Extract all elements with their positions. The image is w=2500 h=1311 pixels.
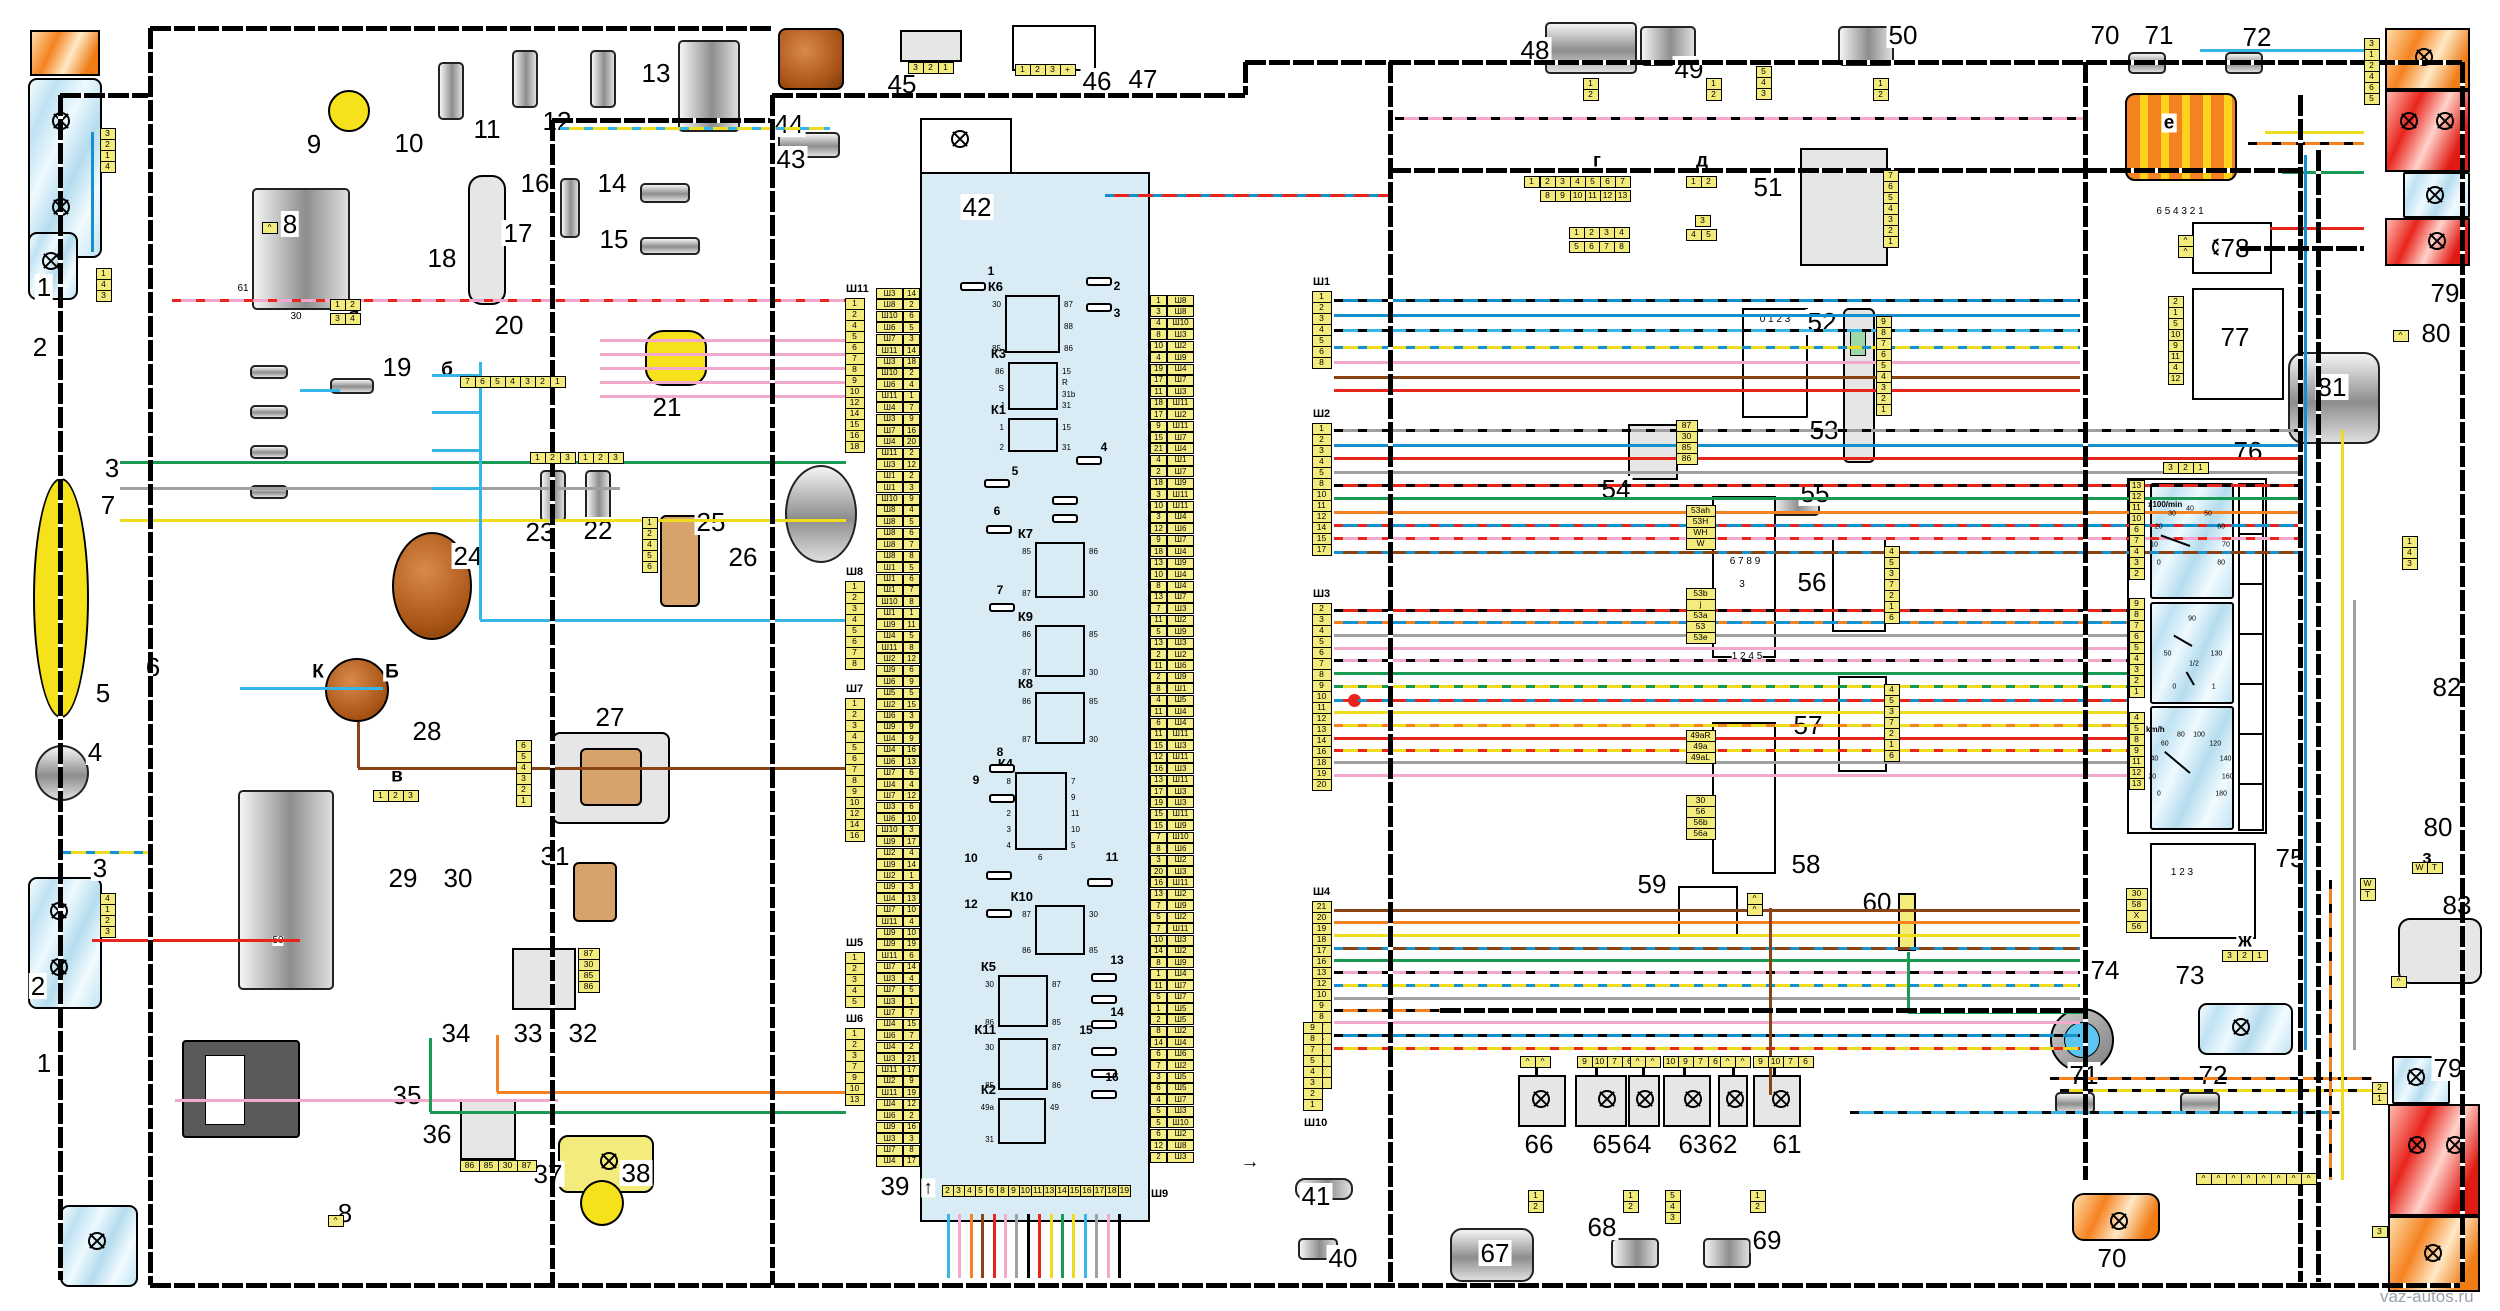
pin-9: 9 <box>903 1076 920 1087</box>
pin-14: 14 <box>1150 946 1167 957</box>
block-left-row: Ш910 <box>876 928 920 939</box>
conn-Ш4: Ш4 <box>876 1019 903 1030</box>
pin-^: ^ <box>2271 1173 2287 1185</box>
conn-Ш3: Ш3 <box>876 802 903 813</box>
gauge-tick-160: 160 <box>2222 773 2234 780</box>
fuel-sender-83 <box>2398 918 2482 984</box>
pin-16: 16 <box>1150 763 1167 774</box>
small-label: 30 <box>290 312 301 322</box>
pin-^: ^ <box>2393 330 2409 342</box>
relay-К7 <box>1035 542 1085 598</box>
column-switch-lower <box>1712 722 1776 874</box>
pin-56: 56 <box>2126 921 2148 933</box>
pin-13: 13 <box>1615 190 1631 202</box>
pin-7: 7 <box>1150 832 1167 843</box>
fuse-1 <box>960 282 986 291</box>
harness-line <box>2460 62 2465 1282</box>
block-left-row: Ш1119 <box>876 1087 920 1098</box>
pin-^: ^ <box>1520 1056 1536 1068</box>
wire-horizontal <box>300 389 340 392</box>
block-right-row: 3Ш8 <box>1150 306 1194 317</box>
conn-Ш10: Ш10 <box>876 494 903 505</box>
block-left-row: Ш11 <box>876 608 920 619</box>
pin-3: 3 <box>1150 306 1167 317</box>
component-number-41: 41 <box>1300 1183 1333 1209</box>
relay-pin-30: 30 <box>1088 911 1099 919</box>
connector-chip: 12456 <box>642 517 657 572</box>
relay-32-body <box>512 948 576 1010</box>
block-right-row: 13Ш3 <box>1150 638 1194 649</box>
generator <box>252 188 350 310</box>
wire-horizontal <box>1334 361 2080 364</box>
block-left-row: Ш67 <box>876 1030 920 1041</box>
gauge-tick-180: 180 <box>2215 790 2227 797</box>
conn-Ш4: Ш4 <box>1167 718 1194 729</box>
pin-1: 1 <box>1150 1003 1167 1014</box>
conn-Ш9: Ш9 <box>876 665 903 676</box>
connector-strip-Ш7: 12345678910121416 <box>845 698 864 841</box>
block-right-row: 6Ш2 <box>1150 1129 1194 1140</box>
wire-vertical <box>1050 1214 1053 1278</box>
pin-56a: 56a <box>1686 828 1716 840</box>
wiring-diagram: vaz-autos.ru 123756432189101112131614151… <box>0 0 2500 1311</box>
wire-horizontal <box>120 461 846 464</box>
pin-2: 2 <box>1584 227 1600 239</box>
relay-К4 <box>1015 772 1067 850</box>
conn-Ш11: Ш11 <box>1167 923 1194 934</box>
connector-chip: 123 <box>578 452 623 463</box>
conn-Ш10: Ш10 <box>1167 1117 1194 1128</box>
conn-Ш11: Ш11 <box>1167 877 1194 888</box>
wire-horizontal <box>1334 711 2127 714</box>
connector-chip: 87308586 <box>1676 420 1697 464</box>
block-right-row: 8Ш9 <box>1150 957 1194 968</box>
conn-Ш9: Ш9 <box>876 859 903 870</box>
fuse-14 <box>1091 1020 1117 1029</box>
wire-horizontal <box>62 851 152 854</box>
relay-pin-9: 9 <box>1070 794 1076 802</box>
conn-Ш11: Ш11 <box>1167 729 1194 740</box>
block-right-row: 11Ш4 <box>1150 706 1194 717</box>
wire-horizontal <box>1334 909 2080 912</box>
conn-Ш4: Ш4 <box>1167 364 1194 375</box>
pin-15: 15 <box>1068 1185 1081 1197</box>
block-right-row: 13Ш2 <box>1150 889 1194 900</box>
pin-11: 11 <box>1150 660 1167 671</box>
conn-Ш8: Ш8 <box>1167 1140 1194 1151</box>
pin-6: 6 <box>903 528 920 539</box>
conn-Ш8: Ш8 <box>876 299 903 310</box>
pin-13: 13 <box>1150 592 1167 603</box>
pin-12: 12 <box>1150 523 1167 534</box>
pin-^: ^ <box>2241 1173 2257 1185</box>
wire-vertical <box>1084 1214 1087 1278</box>
component-number-62: 62 <box>1707 1131 1740 1157</box>
component-number-72: 72 <box>2241 24 2274 50</box>
connector-chip: 123 <box>373 790 418 801</box>
conn-Ш2: Ш2 <box>1167 341 1194 352</box>
relay-pin-7: 7 <box>1070 778 1076 786</box>
fuse-10 <box>986 871 1012 880</box>
relay-pin-31: 31 <box>1061 444 1072 452</box>
pin-1: 1 <box>373 790 389 802</box>
pin-19: 19 <box>903 1087 920 1098</box>
pin-9: 9 <box>903 414 920 425</box>
pin-86: 86 <box>460 1160 480 1172</box>
spark-plug-3 <box>250 445 288 459</box>
connector-name-Ш8: Ш8 <box>845 567 864 578</box>
harness-line <box>1388 62 1393 1282</box>
harness-line <box>2298 95 2303 1282</box>
pin-17: 17 <box>1150 786 1167 797</box>
pin-5: 5 <box>1150 992 1167 1003</box>
connector-chip: ^^^^^^^^ <box>2196 1173 2316 1184</box>
pin-13: 13 <box>1150 638 1167 649</box>
pin-7: 7 <box>1150 1060 1167 1071</box>
pin-86: 86 <box>578 981 600 993</box>
connector-name-Ш1: Ш1 <box>1312 277 1331 288</box>
pin-11: 11 <box>1150 386 1167 397</box>
pin-8: 8 <box>1150 581 1167 592</box>
block-right-row: 18Ш11 <box>1150 398 1194 409</box>
conn-Ш11: Ш11 <box>1167 489 1194 500</box>
block-left-row: Ш88 <box>876 551 920 562</box>
block-right-row: 5Ш2 <box>1150 912 1194 923</box>
wire-horizontal <box>1334 699 2127 702</box>
harness-line <box>1390 168 2300 173</box>
block-left-row: Ш412 <box>876 1099 920 1110</box>
wire-vertical <box>1107 1214 1110 1278</box>
pin-7: 7 <box>460 376 476 388</box>
pin-2: 2 <box>1030 64 1046 76</box>
relay-pin-S: S <box>998 385 1005 393</box>
block-left-row: Ш78 <box>876 1145 920 1156</box>
block-left-row: Ш318 <box>876 357 920 368</box>
block-right-row: 10Ш4 <box>1150 569 1194 580</box>
block-left-row: Ш114 <box>876 916 920 927</box>
connector-chip: 143 <box>2402 536 2417 569</box>
connector-chip: 1 <box>1524 176 1539 187</box>
pin-13: 13 <box>1150 558 1167 569</box>
connector-chip: 86853087 <box>460 1160 536 1171</box>
switchboard-plug <box>573 862 617 922</box>
pin-21: 21 <box>903 1053 920 1064</box>
block-left-row: Ш45 <box>876 631 920 642</box>
connector-strip-Ш6: 123791013 <box>845 1028 864 1105</box>
block-right-row: 1Ш5 <box>1150 1003 1194 1014</box>
conn-Ш7: Ш7 <box>876 985 903 996</box>
connector-name-Ш11: Ш11 <box>845 284 870 295</box>
conn-Ш1: Ш1 <box>876 574 903 585</box>
fuse-number-12: 12 <box>964 898 977 910</box>
connector-chip: ^ <box>2393 330 2408 341</box>
pin-^: ^ <box>1735 1056 1751 1068</box>
pin-5: 5 <box>903 631 920 642</box>
block-right-row: 7Ш2 <box>1150 1060 1194 1071</box>
connector-chip: 12 <box>1686 176 1716 187</box>
conn-Ш11: Ш11 <box>1167 809 1194 820</box>
block-right-row: 16Ш3 <box>1150 763 1194 774</box>
relay-К5 <box>998 975 1048 1027</box>
gauge-tick-90: 90 <box>2188 616 2196 623</box>
pin-8: 8 <box>1150 683 1167 694</box>
component-number-76: 76 <box>2232 438 2265 464</box>
block-right-row: 14Ш4 <box>1150 1037 1194 1048</box>
conn-Ш5: Ш5 <box>1167 1072 1194 1083</box>
wire-vertical <box>1118 1214 1121 1278</box>
component-number-33: 33 <box>512 1020 545 1046</box>
conn-Ш11: Ш11 <box>1167 421 1194 432</box>
harness-line <box>60 93 150 98</box>
wire-vertical <box>1907 952 1910 1012</box>
section-letter-ж: ж <box>2236 932 2253 951</box>
pin-2: 2 <box>345 299 361 311</box>
wire-vertical <box>429 1038 432 1112</box>
fuse-number-7: 7 <box>997 584 1004 596</box>
relay-К10 <box>1035 905 1085 955</box>
component-number-65: 65 <box>1591 1131 1624 1157</box>
wire-horizontal <box>430 1111 846 1114</box>
pin-18: 18 <box>1150 546 1167 557</box>
sensor-9 <box>328 90 370 132</box>
connector-chip: 45 <box>1686 229 1716 240</box>
conn-Ш11: Ш11 <box>876 1087 903 1098</box>
block-left-row: Ш84 <box>876 505 920 516</box>
pin-12: 12 <box>903 790 920 801</box>
connector-chip: 654321 <box>516 740 531 806</box>
relay-label-К9: К9 <box>1018 610 1033 623</box>
block-right-row: 11Ш3 <box>1150 386 1194 397</box>
pin-8: 8 <box>1150 957 1167 968</box>
conn-Ш4: Ш4 <box>1167 569 1194 580</box>
connector-chip: 91076 <box>1753 1056 1813 1067</box>
pin-5: 5 <box>1150 1106 1167 1117</box>
conn-Ш9: Ш9 <box>876 722 903 733</box>
wire-horizontal <box>1334 457 2300 460</box>
conn-Ш11: Ш11 <box>876 916 903 927</box>
conn-Ш2: Ш2 <box>1167 615 1194 626</box>
wire-horizontal <box>2248 142 2364 145</box>
conn-Ш11: Ш11 <box>1167 398 1194 409</box>
wire-horizontal <box>1334 1021 2080 1024</box>
block-left-row: Ш1114 <box>876 345 920 356</box>
wire-horizontal <box>1334 737 2127 740</box>
pin-3: 3 <box>903 825 920 836</box>
conn-Ш8: Ш8 <box>1167 295 1194 306</box>
conn-Ш3: Ш3 <box>1167 763 1194 774</box>
wire-horizontal <box>120 519 846 522</box>
gauge-tick-20: 20 <box>2148 773 2156 780</box>
wire-horizontal <box>1334 609 2127 612</box>
component-number-63: 63 <box>1677 1131 1710 1157</box>
block-right-row: 1Ш4 <box>1150 969 1194 980</box>
component-number-46: 46 <box>1081 68 1114 94</box>
block-left-row: Ш108 <box>876 596 920 607</box>
conn-Ш7: Ш7 <box>876 1145 903 1156</box>
block-left-row: Ш916 <box>876 1122 920 1133</box>
wire-horizontal <box>1334 376 2080 379</box>
wire-vertical <box>2341 430 2344 1180</box>
relay-pin-49a: 49a <box>980 1104 995 1112</box>
block-left-row: Ш118 <box>876 642 920 653</box>
block-left-row: Ш12 <box>876 471 920 482</box>
pin-7: 7 <box>1615 176 1631 188</box>
spark-plug-2 <box>250 405 288 419</box>
sensor-11 <box>512 50 538 108</box>
pin-2: 2 <box>1150 1014 1167 1025</box>
relay-pin-31: 31 <box>984 1136 995 1144</box>
pin-2: 2 <box>903 448 920 459</box>
relay-pin-1: 1 <box>999 424 1005 432</box>
bulb-icon <box>1772 1090 1790 1108</box>
pin-3: 3 <box>903 482 920 493</box>
pin-19: 19 <box>1150 364 1167 375</box>
pin-^: ^ <box>2226 1173 2242 1185</box>
block-left-row: Ш312 <box>876 459 920 470</box>
pin-2: 2 <box>1540 176 1556 188</box>
component-number-67: 67 <box>1479 1240 1512 1266</box>
gauge-tick-0: 0 <box>2172 684 2176 691</box>
connector-chip: 3214 <box>100 128 115 172</box>
pin-13: 13 <box>903 893 920 904</box>
component-number-31: 31 <box>539 843 572 869</box>
component-number-72: 72 <box>2197 1062 2230 1088</box>
pin-9: 9 <box>1150 535 1167 546</box>
fuse-11 <box>1087 878 1113 887</box>
front-turn-lamp-left <box>30 30 100 76</box>
pin-2: 2 <box>1150 672 1167 683</box>
connector-chip: 1312111067432 <box>2129 480 2144 579</box>
block-left-row: Ш75 <box>876 985 920 996</box>
relay-pin-85: 85 <box>1051 1019 1062 1027</box>
conn-Ш3: Ш3 <box>876 414 903 425</box>
pin-^: ^ <box>2256 1173 2272 1185</box>
block-left-row: Ш29 <box>876 1076 920 1087</box>
block-left-row: Ш44 <box>876 779 920 790</box>
relay-pin-85: 85 <box>1021 548 1032 556</box>
block-right-row: 8Ш6 <box>1150 843 1194 854</box>
block-right-row: 3Ш2 <box>1150 855 1194 866</box>
relay-pin-30: 30 <box>1088 736 1099 744</box>
pin-12: 12 <box>903 653 920 664</box>
block-left-row: Ш17 <box>876 585 920 596</box>
conn-Ш6: Ш6 <box>876 711 903 722</box>
pin-8: 8 <box>903 551 920 562</box>
wire-vertical <box>1004 1214 1007 1278</box>
block-left-row: Ш712 <box>876 790 920 801</box>
block-left-row: Ш87 <box>876 539 920 550</box>
wire-vertical <box>958 1214 961 1278</box>
conn-Ш7: Ш7 <box>876 1007 903 1018</box>
pin-1: 1 <box>2193 462 2209 474</box>
component-number-70: 70 <box>2096 1245 2129 1271</box>
starter <box>238 790 334 990</box>
gauge-tick-70: 70 <box>2222 542 2230 549</box>
wire-horizontal <box>1334 389 2080 392</box>
pin-^: ^ <box>1747 904 1763 916</box>
pin-4: 4 <box>345 313 361 325</box>
component-number-9: 9 <box>305 131 323 157</box>
connector-chip: 123+ <box>1015 64 1075 75</box>
connector-chip: 321 <box>908 62 953 73</box>
fuse-13 <box>1091 973 1117 982</box>
pin-2: 2 <box>903 368 920 379</box>
pin-2: 2 <box>1623 1201 1639 1213</box>
conn-Ш8: Ш8 <box>876 516 903 527</box>
block-left-row: Ш42 <box>876 1042 920 1053</box>
wire-vertical <box>1072 1214 1075 1278</box>
conn-Ш9: Ш9 <box>876 1122 903 1133</box>
pin-1: 1 <box>2252 950 2268 962</box>
pin-19: 19 <box>1150 797 1167 808</box>
pin-10: 10 <box>903 813 920 824</box>
connector-chip: 987654321 <box>1876 316 1891 415</box>
pin-9: 9 <box>903 676 920 687</box>
conn-Ш3: Ш3 <box>1167 797 1194 808</box>
conn-Ш4: Ш4 <box>1167 706 1194 717</box>
wire-horizontal <box>1334 537 2300 540</box>
pin-49aL: 49aL <box>1686 752 1716 764</box>
conn-Ш5: Ш5 <box>1167 1014 1194 1025</box>
component-number-80: 80 <box>2420 320 2453 346</box>
section-letter-е: е <box>2162 114 2177 133</box>
conn-Ш2: Ш2 <box>876 653 903 664</box>
pin-9: 9 <box>903 722 920 733</box>
small-label: 61 <box>237 284 248 294</box>
block-left-row: Ш610 <box>876 813 920 824</box>
block-right-row: 7Ш11 <box>1150 923 1194 934</box>
pin-8: 8 <box>1150 329 1167 340</box>
conn-Ш8: Ш8 <box>876 551 903 562</box>
wire-horizontal <box>1395 117 2085 120</box>
conn-Ш9: Ш9 <box>1167 478 1194 489</box>
heater-motor <box>778 28 844 90</box>
wire-horizontal <box>1334 921 2080 924</box>
wire-horizontal <box>1334 934 2080 937</box>
pin-5: 5 <box>1150 912 1167 923</box>
pin-5: 5 <box>1701 229 1717 241</box>
component-number-64: 64 <box>1621 1131 1654 1157</box>
wire-vertical <box>993 1214 996 1278</box>
wire-vertical <box>2353 600 2356 1050</box>
pin-W: W <box>2412 862 2428 874</box>
conn-Ш9: Ш9 <box>1167 352 1194 363</box>
block-left-row: Ш212 <box>876 653 920 664</box>
fuse-number-8: 8 <box>997 746 1004 758</box>
wire-horizontal <box>1334 484 2300 487</box>
pin-3: 3 <box>908 62 924 74</box>
pin-2: 2 <box>1150 1152 1167 1163</box>
small-label: 6 7 8 9 <box>1730 557 1761 567</box>
wire-horizontal <box>1334 997 2080 1000</box>
bulb-icon <box>1636 1090 1654 1108</box>
block-right-row: 11Ш7 <box>1150 980 1194 991</box>
connector-chip: WT <box>2360 878 2375 900</box>
fuse-number-3: 3 <box>1114 307 1121 319</box>
pin-1: 1 <box>1876 404 1892 416</box>
conn-Ш2: Ш2 <box>876 699 903 710</box>
pin-3: 3 <box>1695 215 1711 227</box>
block-right-row: 9Ш11 <box>1150 421 1194 432</box>
pin-10: 10 <box>1150 569 1167 580</box>
pin-15: 15 <box>1150 820 1167 831</box>
pin-5: 5 <box>1585 176 1601 188</box>
relay-pin-31b: 31b <box>1061 391 1076 399</box>
wire-horizontal <box>432 449 480 452</box>
block-left-row: Ш55 <box>876 688 920 699</box>
fuse-number-13: 13 <box>1110 954 1123 966</box>
relay-36-body <box>460 1100 516 1160</box>
